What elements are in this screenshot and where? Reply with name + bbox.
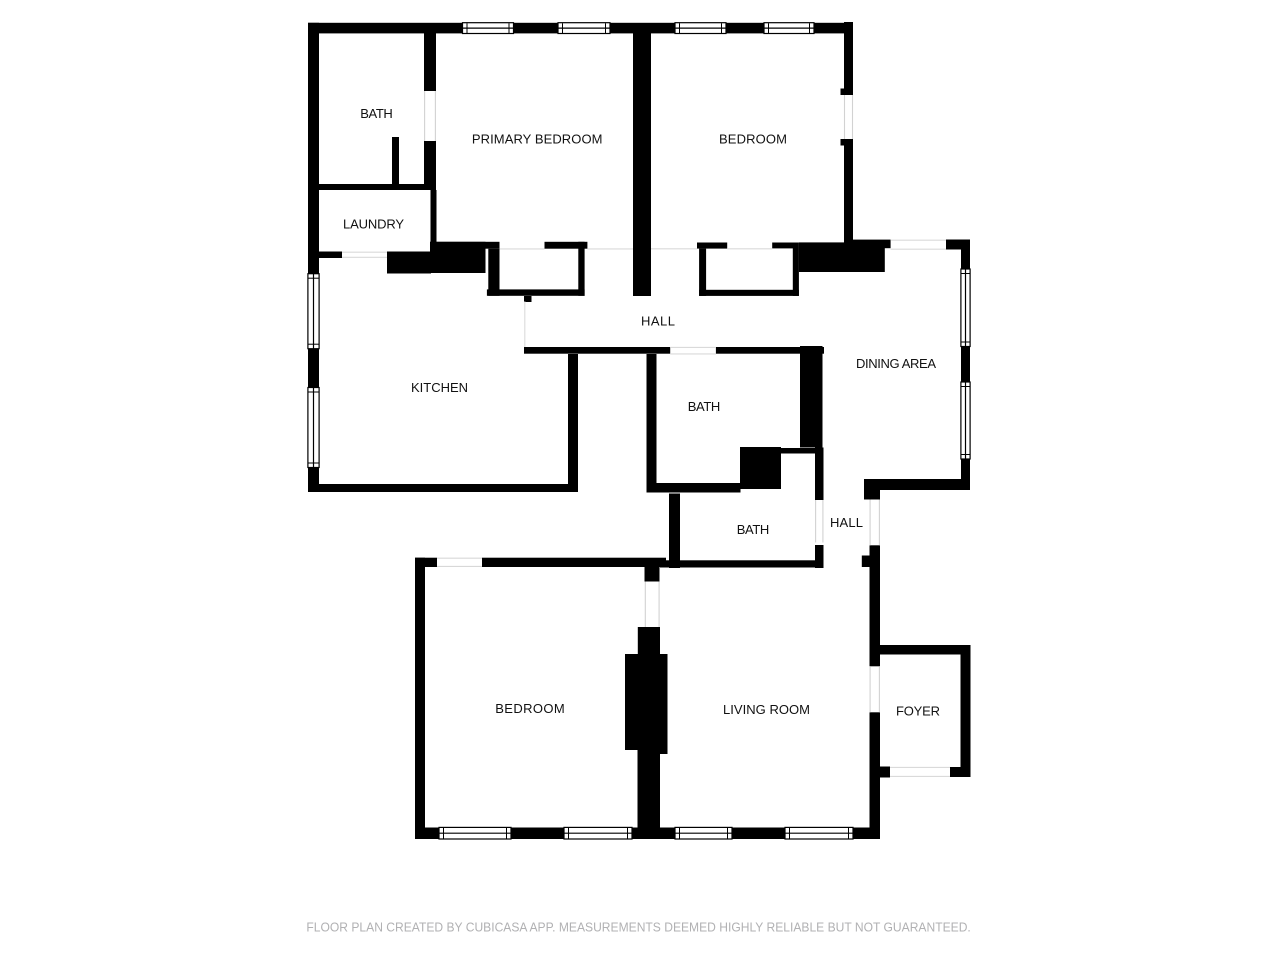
svg-text:BATH: BATH [360,106,393,121]
svg-text:BEDROOM: BEDROOM [719,132,787,147]
svg-text:KITCHEN: KITCHEN [411,380,468,395]
svg-text:LAUNDRY: LAUNDRY [343,216,404,231]
svg-text:FLOOR PLAN CREATED BY CUBICASA: FLOOR PLAN CREATED BY CUBICASA APP. MEAS… [306,919,970,934]
svg-text:FOYER: FOYER [896,704,940,719]
svg-text:BATH: BATH [688,399,721,414]
svg-text:BATH: BATH [737,522,770,537]
svg-text:DINING AREA: DINING AREA [856,356,936,371]
svg-text:HALL: HALL [830,515,863,530]
svg-text:PRIMARY BEDROOM: PRIMARY BEDROOM [472,131,603,146]
svg-text:HALL: HALL [641,313,675,328]
svg-text:BEDROOM: BEDROOM [495,701,565,716]
svg-text:LIVING ROOM: LIVING ROOM [723,702,810,717]
